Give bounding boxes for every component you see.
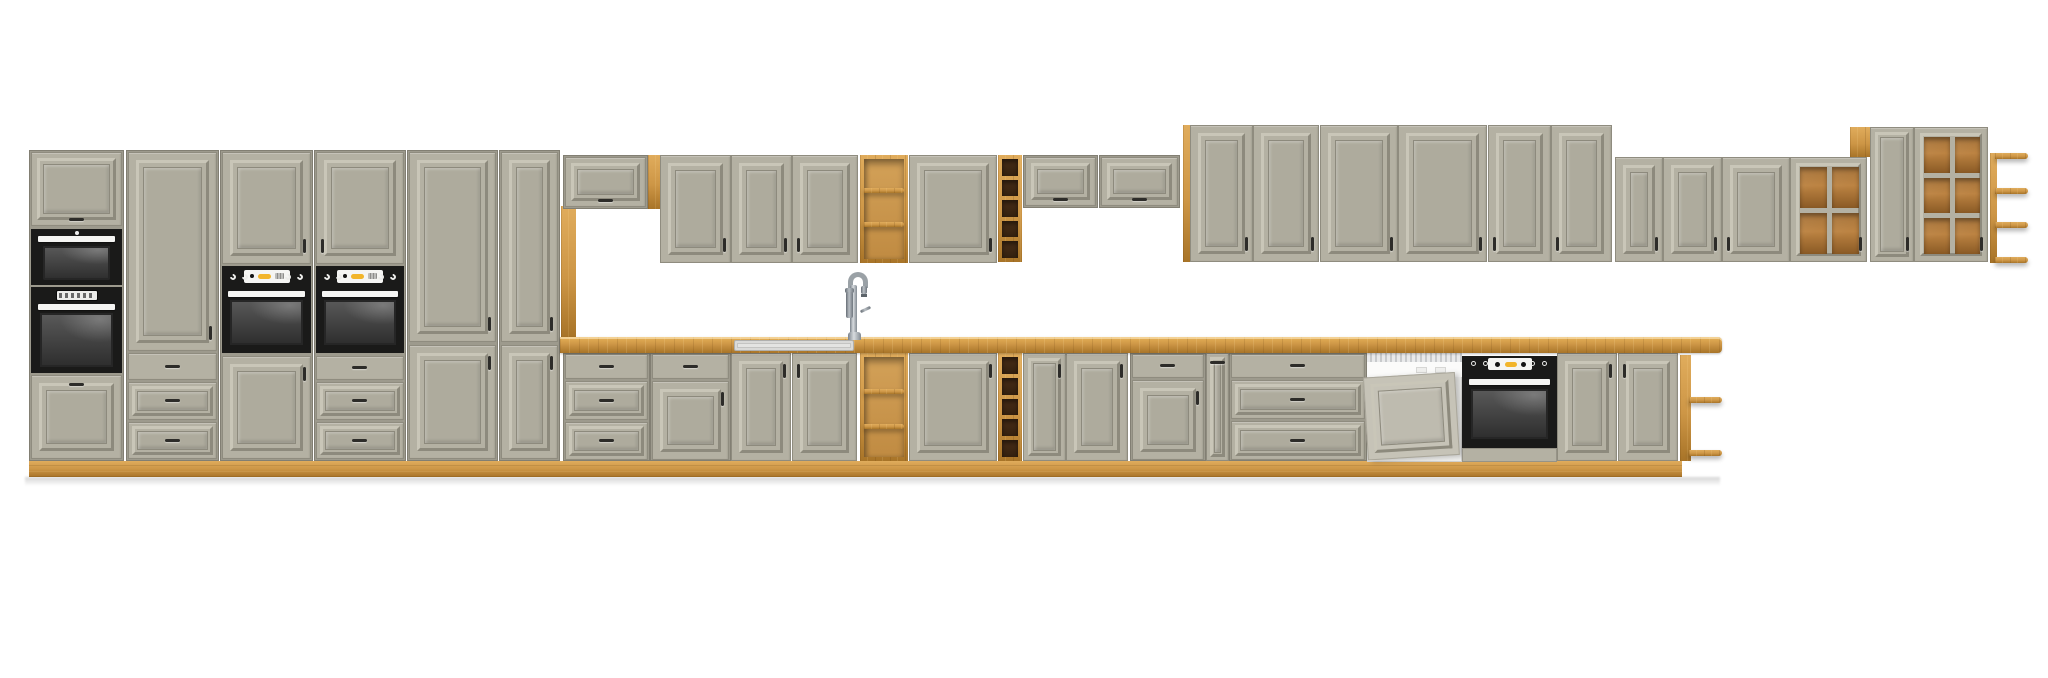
handle-icon bbox=[989, 238, 992, 252]
timer-display bbox=[351, 274, 364, 279]
program-icon bbox=[368, 273, 377, 279]
door-panel bbox=[746, 368, 776, 446]
side-panel bbox=[648, 155, 660, 209]
shelf-board bbox=[1995, 257, 2028, 263]
sink bbox=[734, 340, 854, 351]
door-panel bbox=[1678, 172, 1707, 247]
handle-icon bbox=[1390, 237, 1393, 251]
handle-icon bbox=[1727, 237, 1730, 251]
handle-icon bbox=[209, 326, 212, 340]
door-panel bbox=[1880, 137, 1904, 252]
shelf-board bbox=[864, 222, 904, 227]
oven-control-panel bbox=[316, 266, 404, 287]
door-panel bbox=[1037, 169, 1084, 194]
door-panel bbox=[924, 368, 982, 446]
wall-cabinet-door bbox=[731, 155, 792, 263]
oven-window bbox=[1471, 389, 1548, 439]
wall-cabinet-door bbox=[909, 155, 997, 263]
cabinet-door bbox=[31, 375, 122, 459]
wine-rack-slot bbox=[1002, 357, 1018, 374]
door-panel bbox=[1113, 169, 1166, 194]
cabinet-door bbox=[409, 152, 496, 342]
microwave bbox=[31, 229, 122, 285]
built-in-oven-left bbox=[31, 287, 122, 373]
glass-pane bbox=[1832, 213, 1859, 254]
end-shelf-side-panel bbox=[1680, 355, 1691, 461]
oven-window bbox=[324, 300, 396, 345]
door-panel bbox=[237, 371, 296, 444]
door-panel bbox=[516, 167, 543, 327]
wall-cabinet-door bbox=[1320, 125, 1398, 262]
door-panel bbox=[1205, 140, 1238, 247]
handle-icon bbox=[599, 399, 614, 402]
door-panel bbox=[675, 170, 716, 248]
faucet-base bbox=[848, 332, 861, 340]
handle-icon bbox=[1655, 237, 1658, 251]
flap-door bbox=[1101, 157, 1178, 206]
base-open-shelf bbox=[860, 353, 908, 461]
handle-icon bbox=[550, 317, 553, 331]
drawer bbox=[1132, 354, 1204, 378]
door-panel bbox=[1566, 140, 1597, 247]
wall-cabinet-door bbox=[1615, 157, 1663, 262]
door-panel bbox=[1503, 140, 1536, 247]
handle-icon bbox=[1980, 237, 1983, 251]
wine-rack-slot bbox=[1002, 180, 1018, 197]
wine-rack-slot bbox=[1002, 200, 1018, 217]
cabinet-door bbox=[316, 152, 404, 264]
handle-icon bbox=[599, 365, 614, 368]
door-panel bbox=[1335, 140, 1383, 247]
drawer bbox=[565, 381, 648, 420]
wall-cabinet-door bbox=[1870, 127, 1914, 262]
wine-rack-slot bbox=[1002, 241, 1018, 258]
handle-icon bbox=[1053, 198, 1068, 201]
flap-door bbox=[565, 157, 646, 207]
door-panel bbox=[577, 169, 634, 195]
sink-base-door bbox=[792, 353, 857, 461]
wall-cabinet-door bbox=[1190, 125, 1253, 262]
handle-icon bbox=[598, 199, 613, 202]
handle-icon bbox=[1058, 364, 1061, 378]
door-panel bbox=[1413, 140, 1472, 247]
glass-pane bbox=[1955, 218, 1981, 254]
handle-icon bbox=[797, 364, 800, 378]
cabinet-door bbox=[222, 152, 311, 264]
base-filler-door bbox=[1206, 353, 1229, 461]
oven-door-window bbox=[316, 287, 404, 353]
wine-rack-slot bbox=[1002, 159, 1018, 176]
shelf-board bbox=[864, 389, 904, 394]
handle-icon bbox=[683, 365, 698, 368]
knob-icon bbox=[1542, 361, 1547, 366]
door-panel bbox=[43, 164, 110, 214]
glass-pane bbox=[1800, 167, 1827, 208]
base-cabinet-door bbox=[1618, 353, 1678, 461]
drawer bbox=[316, 382, 404, 420]
wall-cabinet-door bbox=[1398, 125, 1487, 262]
door-panel bbox=[1147, 395, 1189, 445]
handle-icon bbox=[989, 364, 992, 378]
shelf-interior bbox=[864, 159, 904, 259]
handle-icon bbox=[550, 356, 553, 370]
dishwasher-front-panel bbox=[1363, 372, 1460, 460]
handle-icon bbox=[1290, 364, 1305, 367]
handle-icon bbox=[352, 366, 367, 369]
shelf-board bbox=[1995, 153, 2028, 159]
glass-door-cabinet bbox=[1914, 127, 1988, 262]
oven-handle-bar bbox=[228, 291, 305, 297]
wall-cabinet-door bbox=[792, 155, 858, 263]
oven-window bbox=[230, 300, 303, 345]
filler-panel bbox=[1462, 448, 1557, 462]
plinth bbox=[29, 461, 1682, 477]
door-panel bbox=[1572, 368, 1602, 446]
handle-icon bbox=[69, 218, 84, 221]
program-icon bbox=[275, 273, 284, 279]
base-cabinet-door bbox=[1023, 353, 1066, 461]
end-shelf-side-panel bbox=[1990, 153, 1997, 263]
handle-icon bbox=[1479, 237, 1482, 251]
shelf-board bbox=[1689, 397, 1722, 403]
handle-icon bbox=[1623, 364, 1626, 378]
base-cabinet-door bbox=[652, 381, 729, 460]
floor-shadow bbox=[25, 477, 1720, 486]
door-panel bbox=[237, 167, 296, 249]
glass-pane bbox=[1800, 213, 1827, 254]
handle-icon bbox=[303, 367, 306, 381]
glass-pane bbox=[1955, 178, 1981, 214]
handle-icon bbox=[599, 439, 614, 442]
wine-rack-slot bbox=[1002, 378, 1018, 395]
power-dot-icon bbox=[250, 274, 254, 278]
built-in-oven-right bbox=[1462, 352, 1557, 462]
drawer bbox=[316, 422, 404, 459]
door-panel bbox=[424, 167, 481, 327]
wine-rack-slot bbox=[1002, 221, 1018, 238]
knob-dot-icon bbox=[1495, 362, 1500, 367]
handle-icon bbox=[1556, 237, 1559, 251]
lamp-icon bbox=[75, 231, 79, 235]
drawer bbox=[1231, 380, 1365, 419]
door-panel bbox=[1630, 172, 1648, 247]
drawer bbox=[1231, 421, 1365, 460]
door-panel bbox=[46, 390, 107, 444]
wine-rack-slot bbox=[1002, 419, 1018, 436]
shelf-board bbox=[864, 424, 904, 429]
handle-icon bbox=[1245, 237, 1248, 251]
side-panel bbox=[561, 206, 576, 337]
knob-icon bbox=[389, 272, 397, 280]
wall-wine-rack bbox=[998, 155, 1022, 262]
display-segments bbox=[59, 293, 95, 298]
handle-icon bbox=[352, 399, 367, 402]
oven-handle-bar bbox=[38, 304, 115, 310]
handle-icon bbox=[165, 439, 180, 442]
handle-icon bbox=[1859, 237, 1862, 251]
wall-cabinet-door bbox=[1488, 125, 1551, 262]
door-panel bbox=[143, 167, 202, 336]
shelf-board bbox=[1689, 450, 1722, 456]
door-panel bbox=[807, 170, 843, 248]
handle-icon bbox=[723, 238, 726, 252]
microwave-window bbox=[43, 246, 110, 280]
cabinet-door bbox=[409, 345, 496, 459]
handle-icon bbox=[1714, 237, 1717, 251]
knob-icon bbox=[1530, 361, 1535, 366]
oven-handle-bar bbox=[322, 291, 398, 297]
handle-icon bbox=[1290, 439, 1305, 442]
handle-icon bbox=[1196, 391, 1199, 405]
dishwasher bbox=[1367, 352, 1462, 462]
top-filler bbox=[1850, 127, 1872, 157]
faucet-spout-tip bbox=[861, 286, 867, 294]
control-plate bbox=[337, 270, 383, 283]
knob-icon bbox=[296, 272, 304, 280]
kitchen-product-render bbox=[0, 0, 2048, 678]
oven-display bbox=[57, 291, 97, 300]
shelf-interior bbox=[864, 357, 904, 457]
flap-door bbox=[31, 152, 122, 226]
door-panel bbox=[1214, 361, 1221, 453]
cabinet-door bbox=[501, 152, 558, 342]
side-panel bbox=[1183, 125, 1190, 262]
door-panel bbox=[746, 170, 777, 248]
control-plate bbox=[244, 270, 290, 283]
door-panel bbox=[1633, 368, 1663, 446]
shelf-board bbox=[1995, 222, 2028, 228]
drawer bbox=[565, 354, 648, 379]
glass-pane bbox=[1924, 178, 1950, 214]
wall-end-shelf bbox=[1990, 153, 2028, 263]
dishwasher-top-trim bbox=[1367, 352, 1462, 362]
glass-pane bbox=[1832, 167, 1859, 208]
handle-icon bbox=[784, 238, 787, 252]
glass-pane bbox=[1924, 218, 1950, 254]
knob-icon bbox=[229, 272, 237, 280]
cabinet-door bbox=[501, 345, 558, 459]
handle-icon bbox=[1493, 237, 1496, 251]
timer-display bbox=[258, 274, 271, 279]
oven-control-panel bbox=[1462, 356, 1557, 372]
door-panel bbox=[1081, 368, 1113, 446]
spray-wand bbox=[846, 292, 853, 318]
drawer bbox=[316, 356, 404, 380]
handle-icon bbox=[1132, 198, 1147, 201]
knob-icon bbox=[1471, 361, 1476, 366]
drawer bbox=[128, 382, 217, 420]
handle-icon bbox=[165, 365, 180, 368]
handle-icon bbox=[1290, 398, 1305, 401]
wall-cabinet-door bbox=[1663, 157, 1722, 262]
power-dot-icon bbox=[343, 274, 347, 278]
door-panel bbox=[667, 396, 714, 445]
handle-icon bbox=[321, 239, 324, 253]
knob-dot-icon bbox=[1521, 362, 1526, 367]
drawer bbox=[1231, 354, 1365, 378]
handle-icon bbox=[488, 356, 491, 370]
control-plate bbox=[1488, 358, 1532, 370]
shelf-board bbox=[1995, 188, 2028, 194]
door-panel bbox=[1268, 140, 1304, 247]
oven-window bbox=[40, 313, 113, 367]
glass-pane bbox=[1955, 137, 1981, 173]
handle-icon bbox=[303, 239, 306, 253]
door-panel bbox=[1378, 387, 1445, 446]
base-wine-rack bbox=[998, 353, 1022, 461]
sink-base-door bbox=[731, 353, 791, 461]
base-end-shelf bbox=[1680, 355, 1722, 461]
base-cabinet-door bbox=[1557, 353, 1617, 461]
flap-door bbox=[1025, 157, 1096, 206]
wine-rack-slot bbox=[1002, 440, 1018, 457]
wall-open-shelf bbox=[860, 155, 908, 263]
oven-control-panel bbox=[222, 266, 311, 287]
handle-icon bbox=[797, 238, 800, 252]
shelf-board bbox=[864, 188, 904, 193]
faucet-nozzle bbox=[861, 294, 867, 297]
handle-icon bbox=[721, 392, 724, 406]
drawer bbox=[565, 422, 648, 460]
door-panel bbox=[924, 170, 982, 248]
drawer bbox=[128, 353, 217, 380]
knob-icon bbox=[323, 272, 331, 280]
oven-body bbox=[1462, 372, 1557, 448]
handle-icon bbox=[783, 364, 786, 378]
wine-rack-slot bbox=[1002, 399, 1018, 416]
handle-icon bbox=[352, 439, 367, 442]
oven-door-window bbox=[222, 287, 311, 353]
handle-icon bbox=[1609, 364, 1612, 378]
handle-icon bbox=[69, 383, 84, 386]
glass-door-cabinet bbox=[1790, 157, 1867, 262]
base-cabinet-door bbox=[1066, 353, 1128, 461]
oven-handle-bar bbox=[1469, 379, 1550, 385]
handle-icon bbox=[1311, 237, 1314, 251]
wall-cabinet-door bbox=[1551, 125, 1612, 262]
handle-icon bbox=[488, 317, 491, 331]
timer-display bbox=[1505, 362, 1517, 367]
drawer bbox=[652, 354, 729, 379]
base-cabinet-door bbox=[1132, 380, 1204, 460]
handle-icon bbox=[1210, 361, 1225, 364]
cabinet-door bbox=[128, 152, 217, 351]
sink-basin bbox=[737, 343, 851, 348]
door-panel bbox=[807, 368, 842, 446]
door-bar bbox=[38, 236, 115, 242]
cabinet-door bbox=[222, 356, 311, 459]
handle-icon bbox=[1906, 237, 1909, 251]
wall-cabinet-door bbox=[660, 155, 731, 263]
base-cabinet-door bbox=[909, 353, 997, 461]
handle-icon bbox=[1160, 364, 1175, 367]
drawer bbox=[128, 422, 217, 459]
handle-icon bbox=[1120, 364, 1123, 378]
handle-icon bbox=[165, 399, 180, 402]
glass-pane bbox=[1924, 137, 1950, 173]
door-panel bbox=[1033, 363, 1056, 451]
faucet-lever bbox=[860, 306, 871, 313]
wall-cabinet-door bbox=[1253, 125, 1319, 262]
door-panel bbox=[1737, 172, 1775, 247]
control-button bbox=[1416, 367, 1427, 373]
faucet bbox=[840, 272, 870, 340]
wall-cabinet-door bbox=[1722, 157, 1790, 262]
door-panel bbox=[516, 360, 543, 444]
door-panel bbox=[424, 360, 481, 444]
knob-icon bbox=[1483, 361, 1488, 366]
door-panel bbox=[331, 167, 389, 249]
